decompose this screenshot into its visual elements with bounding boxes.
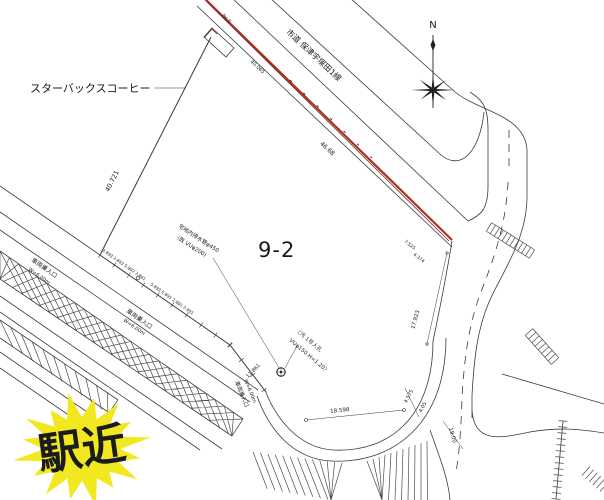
southeast-corner-fillet (472, 410, 604, 437)
southwest-road (0, 212, 258, 450)
sw-road-line (0, 230, 250, 402)
vertical-road-left-edge (468, 92, 488, 221)
dim-top: 40.065 (249, 59, 266, 75)
east-road-right-edge (472, 196, 527, 418)
south-road-west-edge (430, 430, 450, 500)
road-edge-far (231, 0, 468, 221)
embankment-hatch-upper (486, 223, 534, 258)
sw-road-line (0, 320, 118, 400)
dim-se-seg2: 4.05 (418, 401, 429, 414)
road-edge-near (197, 6, 452, 247)
sw-road-lattice-hatch (0, 251, 243, 436)
dim-south-road: 19.00 (447, 427, 457, 444)
dim-chord: 18.598 (330, 407, 350, 415)
main-road (197, 0, 527, 247)
dim-se-seg1: 4.575 (403, 389, 415, 404)
southwest-road-edge-extension (0, 186, 100, 255)
north-label: N (429, 20, 436, 31)
sw-road-lower-hatch (0, 320, 118, 414)
dim-end-marker (305, 419, 308, 422)
dim-line-east (427, 253, 447, 344)
starbucks-label: スターバックスコーヒー (30, 82, 151, 95)
parcel-number-label: 9-2 (258, 238, 295, 262)
manhole-cross (276, 367, 286, 377)
bottom-east-road-edge (502, 374, 604, 404)
road-far-line-2 (269, 0, 484, 161)
station-badge: 駅近 (13, 393, 150, 500)
compass-needle-diamond (431, 39, 436, 51)
dim-end-marker (426, 343, 428, 345)
dim-northeast: 46.68 (318, 140, 335, 157)
north-compass: N (411, 20, 455, 108)
dim-east-seg1: 7.525 (403, 239, 417, 252)
dim-east-seg2: 4.374 (412, 252, 426, 265)
dim-end-marker (403, 409, 406, 412)
east-road (430, 130, 604, 500)
road-name-label: 市道 保津宇塚田1線 (284, 27, 343, 83)
site-plan-svg: N スターバックスコーヒー 市道 保津宇塚田1線 40.065 No.6 46.… (0, 0, 604, 500)
manhole-leader-line (285, 346, 297, 368)
parcel-boundary (0, 37, 452, 461)
dim-west: 40.721 (103, 169, 120, 193)
dim-pipe: 11.861 (245, 363, 262, 380)
dim-east: 17.923 (411, 309, 422, 330)
corner-hatch (582, 467, 604, 492)
annotations: スターバックスコーヒー 市道 保津宇塚田1線 40.065 No.6 46.68… (27, 13, 457, 444)
east-boundary (433, 241, 452, 341)
drain-pipe-line (213, 258, 281, 371)
sw-road-line (0, 368, 70, 416)
crosswalk-stripes-right (367, 441, 428, 500)
east-road-centerline (456, 182, 508, 472)
embankment-hatch-mid (525, 329, 558, 365)
parcel-boundary-red-inner (207, 2, 449, 241)
dim-chain-2: 5.893 5.891 2.891 2.891 (149, 282, 195, 316)
sw-road-line (0, 352, 90, 414)
west-boundary (100, 37, 211, 255)
compass-star-icon (411, 74, 455, 106)
crosswalk-stripes-left (253, 452, 342, 500)
dim-end-marker (446, 252, 448, 254)
dim-line-chord (306, 410, 404, 420)
sw-road-line (0, 279, 232, 436)
site-plan-drawing: N スターバックスコーヒー 市道 保津宇塚田1線 40.065 No.6 46.… (0, 0, 604, 500)
dim-chain-1: 2.893 2.893 5.892 2.891 (101, 248, 147, 282)
south-fillet-curb-outer (257, 338, 446, 461)
sw-road-line (0, 212, 258, 390)
